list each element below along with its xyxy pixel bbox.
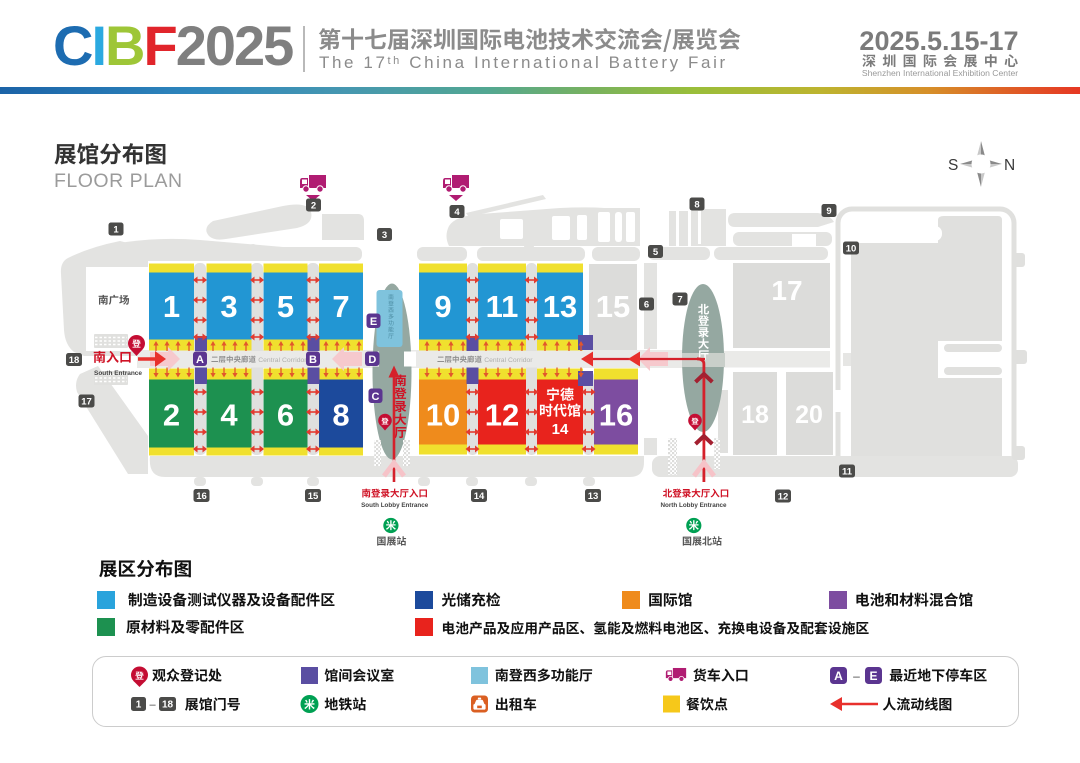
svg-text:18: 18 (162, 700, 174, 711)
svg-text:E: E (869, 669, 877, 683)
svg-text:–: – (853, 669, 860, 683)
svg-text:1: 1 (136, 700, 142, 711)
svg-text:–: – (149, 699, 156, 711)
svg-text:A: A (834, 669, 843, 683)
